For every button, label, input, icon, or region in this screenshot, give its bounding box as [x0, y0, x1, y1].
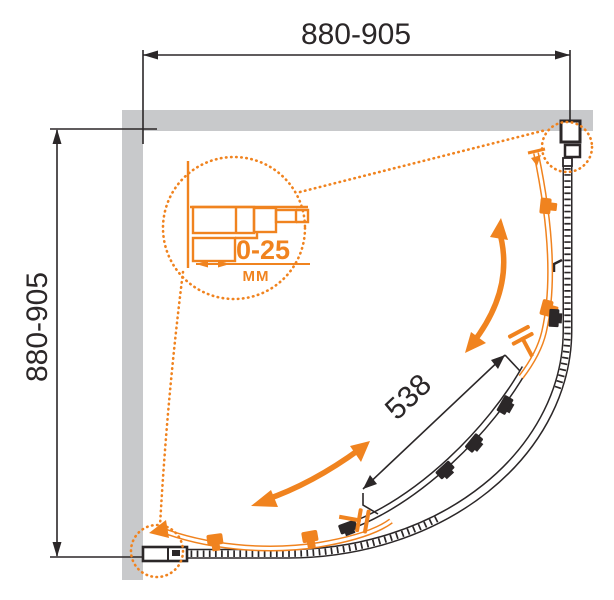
- arrowhead-up: [53, 129, 62, 144]
- wall-profile-bottom-left: [143, 547, 187, 561]
- inner-glass-panel: [348, 260, 562, 527]
- leader-to-bottom-left: [160, 272, 183, 526]
- adjustment-unit-label: MM: [243, 268, 270, 285]
- slide-arrow-bottom: [251, 441, 370, 507]
- slide-arrow-right: [465, 218, 508, 353]
- door-chord-label: 538: [379, 368, 438, 426]
- top-width-label: 880-905: [301, 18, 411, 51]
- detail-circle-large: [163, 157, 305, 299]
- guide-rollers-black: [338, 309, 563, 538]
- arrowhead-down: [53, 542, 62, 557]
- wall-top: [122, 110, 593, 131]
- arrowhead-right: [555, 51, 570, 60]
- adjustment-range-label: 0-25: [236, 235, 290, 265]
- wall-profile-top-right: [561, 121, 580, 166]
- wall-left: [122, 110, 143, 580]
- left-height-label: 880-905: [21, 272, 54, 382]
- curved-track: [184, 162, 568, 554]
- door-end-cap-bottom: [149, 520, 169, 538]
- wall-band: [122, 110, 593, 580]
- leader-to-top-right: [300, 130, 546, 192]
- dimension-left-height: [50, 129, 184, 557]
- shower-enclosure-diagram: 880-905 880-905: [0, 0, 614, 600]
- diagram-canvas: 880-905 880-905: [0, 0, 614, 600]
- arrowhead-left: [143, 51, 158, 60]
- dimension-door-chord: [363, 355, 520, 514]
